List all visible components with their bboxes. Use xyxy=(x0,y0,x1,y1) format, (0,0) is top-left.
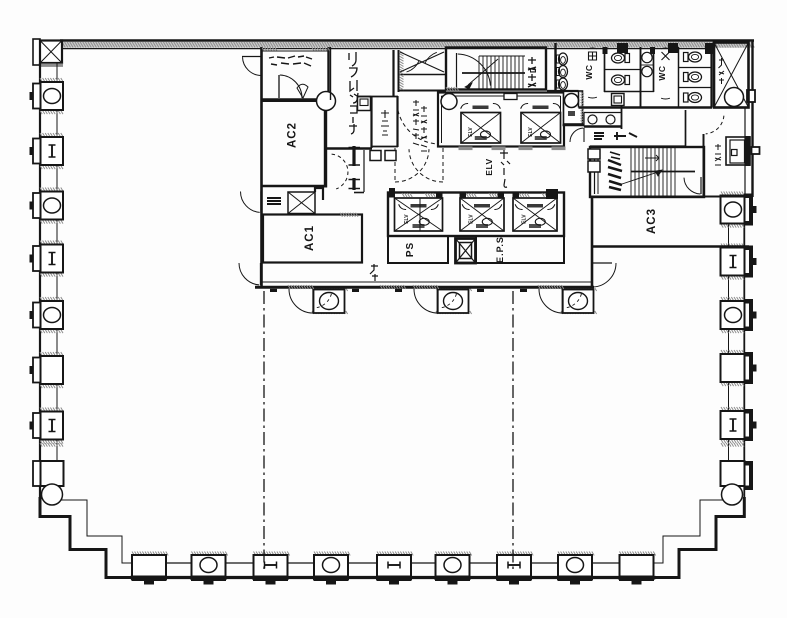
svg-text:ELV: ELV xyxy=(468,127,474,137)
svg-text:ELV: ELV xyxy=(484,158,494,175)
svg-text:AC2: AC2 xyxy=(287,122,299,148)
svg-text:ELV: ELV xyxy=(521,214,527,224)
svg-text:PS: PS xyxy=(405,242,416,257)
svg-text:AC3: AC3 xyxy=(646,208,658,234)
svg-text:ELV: ELV xyxy=(528,127,534,137)
svg-text:AC1: AC1 xyxy=(304,225,316,251)
svg-text:WC: WC xyxy=(584,64,594,79)
svg-text:E.P.S: E.P.S xyxy=(495,236,505,263)
svg-text:WC: WC xyxy=(657,65,667,80)
svg-text:ELV: ELV xyxy=(468,214,474,224)
svg-text:ELV: ELV xyxy=(404,214,410,224)
